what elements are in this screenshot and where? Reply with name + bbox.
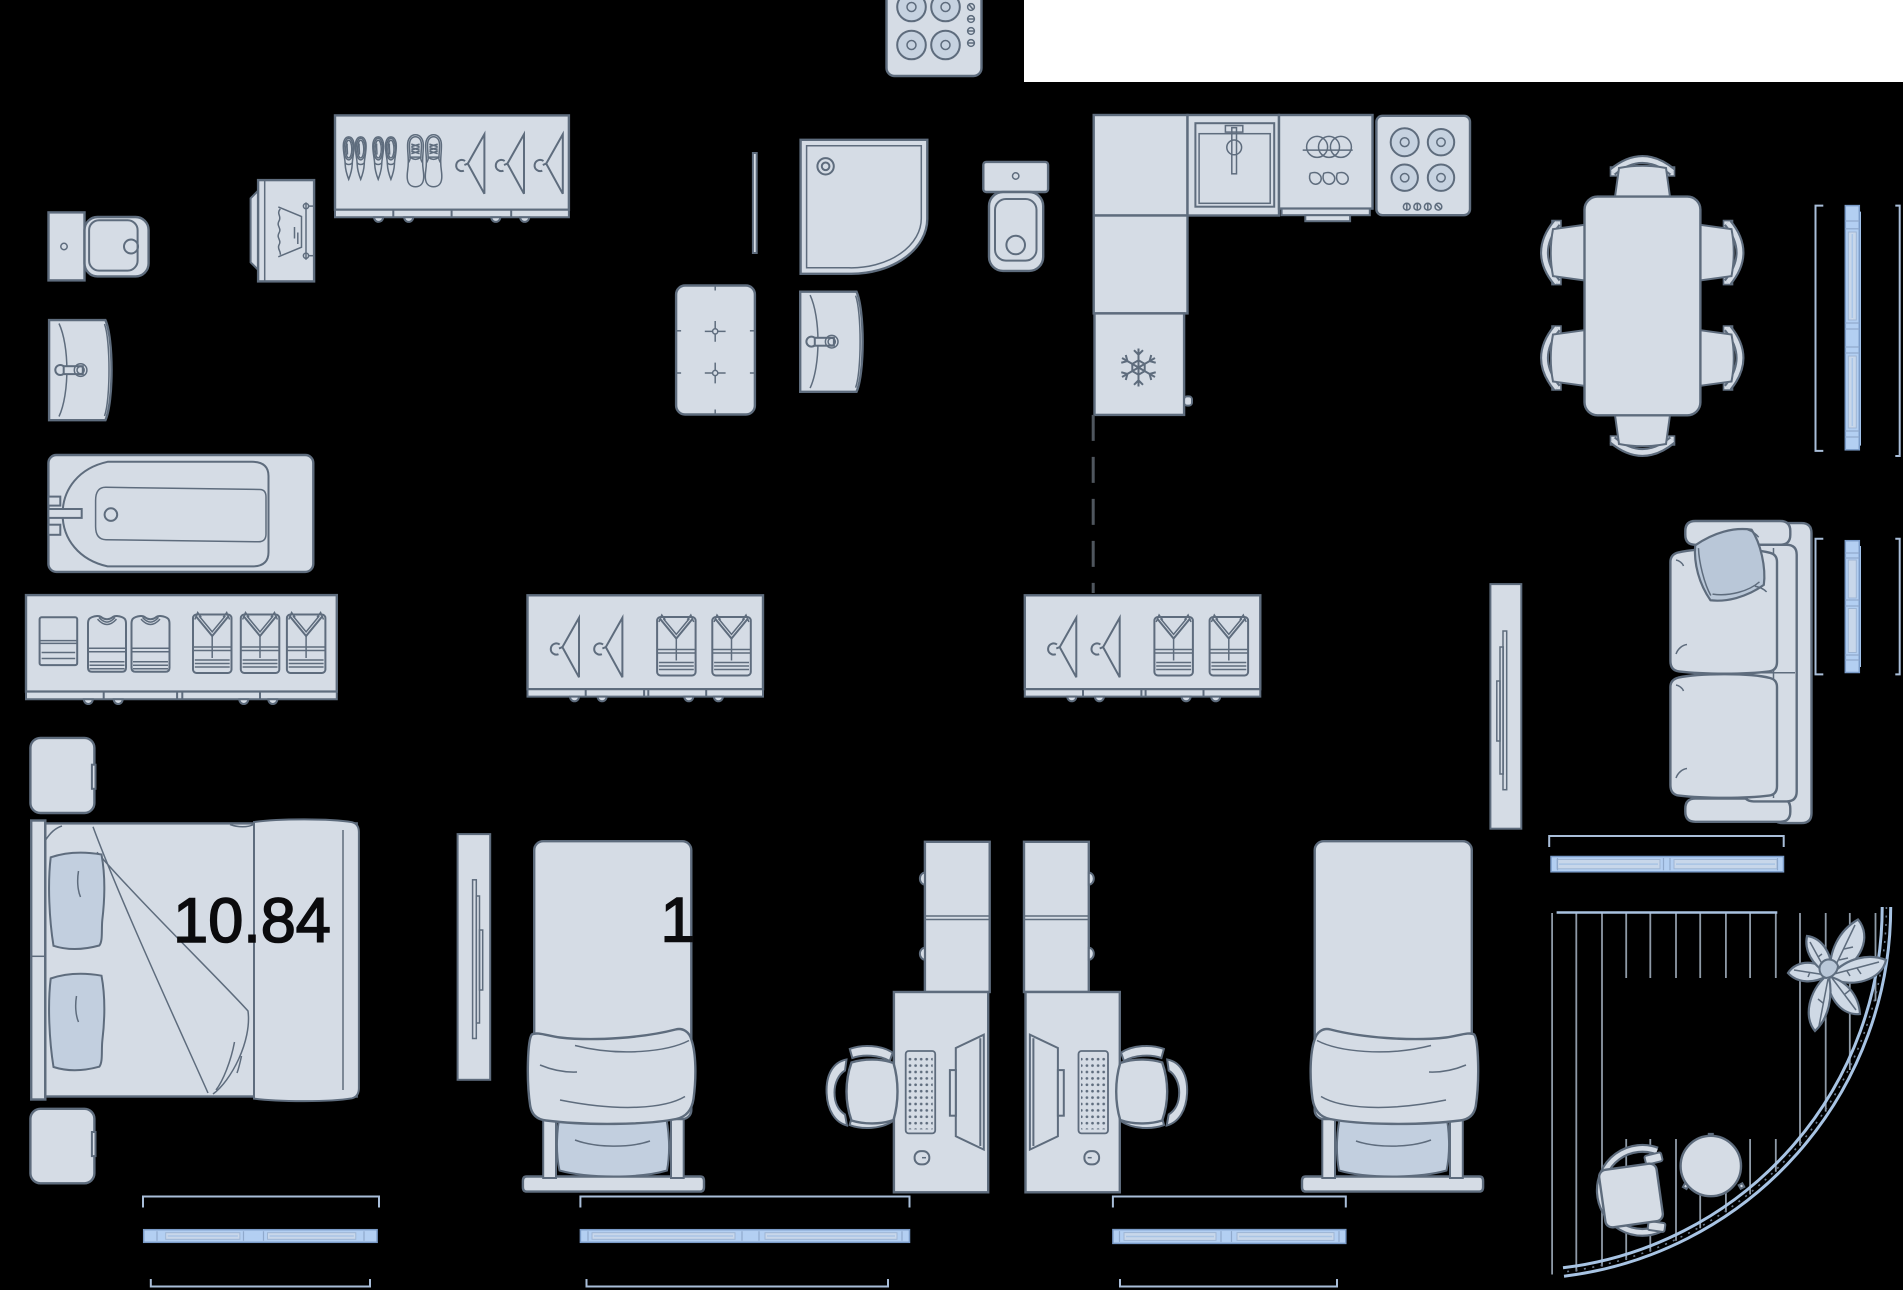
svg-text:10.84: 10.84 bbox=[173, 886, 331, 956]
svg-text:1: 1 bbox=[660, 886, 695, 956]
